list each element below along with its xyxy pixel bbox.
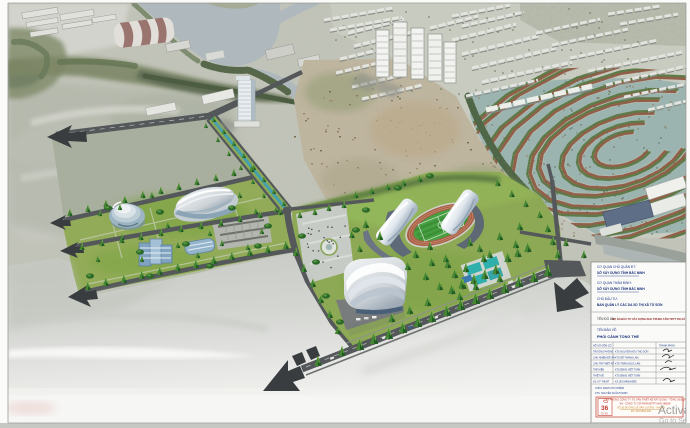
svg-text:KTS TRẦN NGỌC LÂM: KTS TRẦN NGỌC LÂM	[615, 363, 640, 366]
svg-text:TÊN BẢN VẼ:: TÊN BẢN VẼ:	[597, 327, 617, 332]
svg-text:KS LÊ KHÁNH ĐỀN: KS LÊ KHÁNH ĐỀN	[615, 381, 637, 384]
svg-text:THỂ HIỆN: THỂ HIỆN	[593, 369, 604, 372]
svg-text:CƠ QUAN THẨM ĐỊNH:: CƠ QUAN THẨM ĐỊNH:	[597, 280, 632, 285]
svg-text:KTS NGUYỄN HỮU THỌ SƠN: KTS NGUYỄN HỮU THỌ SƠN	[615, 351, 649, 354]
svg-text:KTS ĐẶNG VIẾT TUẤN: KTS ĐẶNG VIẾT TUẤN	[615, 375, 641, 378]
svg-text:KTS ĐẶNG VIẾT TUẤN: KTS ĐẶNG VIẾT TUẤN	[615, 369, 641, 372]
svg-text:KS. KỸ THUẬT: KS. KỸ THUẬT	[593, 381, 610, 384]
svg-text:SỞ XÂY DỰNG TỈNH BẮC NINH: SỞ XÂY DỰNG TỈNH BẮC NINH	[597, 270, 645, 275]
svg-text:36: 36	[601, 405, 609, 412]
svg-text:TK.XD: TK.XD	[601, 414, 608, 416]
svg-text:KTS. NGUYỄN XUÂN THANH: KTS. NGUYỄN XUÂN THANH	[595, 392, 628, 395]
svg-text:CHỦ TRÌ THIẾT KẾ: CHỦ TRÌ THIẾT KẾ	[593, 363, 614, 366]
svg-text:CHỦ NHIỆM ĐỒ ÁN: CHỦ NHIỆM ĐỒ ÁN	[593, 357, 615, 360]
svg-text:SỞ XÂY DỰNG TỈNH BẮC NINH: SỞ XÂY DỰNG TỈNH BẮC NINH	[597, 286, 645, 291]
svg-text:ĐT: 043.5553.036: ĐT: 043.5553.036	[631, 410, 651, 413]
svg-text:VĂN PHÒNG CÔNG TY TƯ VẤN THIẾT: VĂN PHÒNG CÔNG TY TƯ VẤN THIẾT KẾ XÂY DỰ…	[604, 399, 686, 402]
svg-text:THIẾT KẾ: THIẾT KẾ	[593, 375, 604, 378]
svg-text:THÀNH PHẦN: THÀNH PHẦN	[659, 345, 675, 348]
svg-text:CƠ QUAN CHỦ QUẢN ĐT:: CƠ QUAN CHỦ QUẢN ĐT:	[597, 264, 636, 269]
svg-text:KTS ĐỖ THANH LAM: KTS ĐỖ THANH LAM	[615, 357, 638, 360]
svg-text:CHỨC DANH CHỦ NHIỆM: CHỨC DANH CHỦ NHIỆM	[595, 387, 624, 390]
svg-text:HỒ SƠ GỒM CÓ: HỒ SƠ GỒM CÓ	[593, 345, 612, 348]
svg-text:BAN QUẢN LÝ CÁC DA XD THỊ XÃ T: BAN QUẢN LÝ CÁC DA XD THỊ XÃ TỪ SƠN	[597, 302, 663, 307]
svg-text:TRƯỞNG PHÒNG: TRƯỞNG PHÒNG	[593, 351, 613, 354]
svg-text:PHỐI CẢNH TỔNG THỂ: PHỐI CẢNH TỔNG THỂ	[597, 334, 639, 339]
svg-text:CHỦ ĐẦU TƯ:: CHỦ ĐẦU TƯ:	[597, 296, 618, 301]
svg-text:Activat: Activat	[658, 403, 690, 417]
